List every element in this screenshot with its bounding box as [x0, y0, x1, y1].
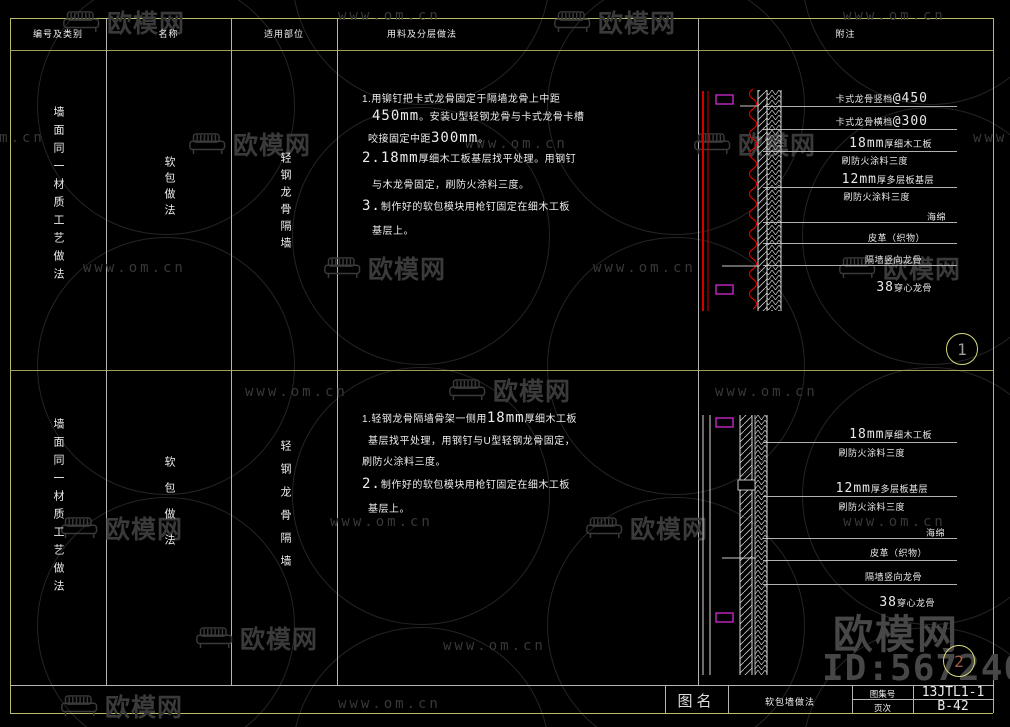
col-line-2 — [231, 18, 232, 685]
label-cassette-rail: 卡式龙骨横档@300 — [836, 114, 928, 129]
method-text: 厚细木工板 — [525, 414, 578, 425]
row-divider — [10, 370, 993, 371]
label-through-stud: 38穿心龙骨 — [879, 595, 935, 610]
label-multilayer-12: 12mm厚多层板基层 — [836, 481, 928, 496]
sofa-icon — [60, 516, 102, 540]
url-watermark: www.om.cn — [245, 384, 348, 400]
col-line-3 — [337, 18, 338, 685]
row2-location: 轻钢龙骨隔墙 — [277, 440, 293, 578]
page-number-value: B-42 — [913, 699, 993, 714]
row2-method-line: 刷防火涂料三度。 — [362, 453, 446, 468]
oumo-logo-watermark: 欧模网 — [323, 250, 446, 286]
label-dim: 38 — [876, 280, 894, 295]
detail-number-1: 1 — [946, 333, 978, 365]
url-watermark: www.om.cn — [593, 260, 696, 276]
row1-method-line: 3.制作好的软包模块用枪钉固定在细木工板 — [362, 198, 570, 214]
label-dim: 18mm — [849, 427, 884, 442]
watermark-logo-text: 欧模网 — [493, 372, 571, 408]
row2-category: 墙面同一材质工艺做法 — [50, 418, 66, 598]
oumo-logo-watermark: 欧模网 — [553, 4, 676, 40]
row1-name: 软包做法 — [161, 156, 177, 220]
sofa-icon — [553, 10, 595, 34]
label-text: 厚细木工板 — [884, 430, 932, 440]
sofa-icon — [195, 626, 237, 650]
row2-name: 软包做法 — [161, 456, 177, 560]
drawing-name-value: 软包墙做法 — [728, 695, 852, 708]
row1-location: 轻钢龙骨隔墙 — [277, 152, 293, 254]
oumo-logo-watermark: 欧模网 — [448, 372, 571, 408]
row2-method-line: 基层上。 — [368, 500, 410, 515]
label-sponge: 海绵 — [926, 526, 945, 539]
header-underline — [10, 50, 993, 51]
label-text: 卡式龙骨竖档 — [836, 94, 893, 104]
row1-method-line: 与木龙骨固定，刷防火涂料三度。 — [372, 176, 530, 191]
label-partition-stud: 隔墙竖向龙骨 — [865, 570, 922, 583]
url-watermark: www.om.cn — [338, 8, 441, 24]
url-watermark: www.om.cn — [715, 384, 818, 400]
sofa-icon — [323, 256, 365, 280]
dim-value: 18mm — [487, 410, 525, 426]
watermark-logo-text: 欧模网 — [105, 688, 183, 724]
col-line-1 — [106, 18, 107, 685]
label-dim: @300 — [893, 114, 928, 129]
label-text: 厚细木工板 — [884, 139, 932, 149]
label-through-stud: 38穿心龙骨 — [876, 280, 932, 295]
header-name: 名称 — [106, 27, 231, 40]
row1-method-line: 咬接固定中距300mm。 — [368, 130, 489, 146]
sofa-icon — [60, 694, 102, 718]
watermark-logo-text: 欧模网 — [240, 620, 318, 656]
oumo-logo-watermark: 欧模网 — [60, 688, 183, 724]
label-dim: 38 — [879, 595, 897, 610]
method-text: 咬接固定中距 — [368, 134, 431, 145]
label-dim: 18mm — [849, 136, 884, 151]
url-watermark: www.om.cn — [330, 514, 433, 530]
row1-method-line: 2.18mm厚细木工板基层找平处理。用钢钉 — [362, 150, 576, 166]
url-watermark: www.om.cn — [0, 130, 45, 146]
row1-method-line: 基层上。 — [372, 222, 414, 237]
label-plywood-18: 18mm厚细木工板 — [849, 136, 932, 151]
label-dim: @450 — [893, 91, 928, 106]
label-fireproof-coat: 刷防火涂料三度 — [843, 190, 910, 203]
label-fireproof-coat: 刷防火涂料三度 — [841, 154, 908, 167]
label-partition-stud: 隔墙竖向龙骨 — [865, 253, 922, 266]
oumo-logo-watermark: 欧模网 — [195, 620, 318, 656]
page-number-label: 页次 — [852, 702, 913, 714]
label-fireproof-coat: 刷防火涂料三度 — [838, 446, 905, 459]
label-dim: 12mm — [836, 481, 871, 496]
label-cassette-stud: 卡式龙骨竖档@450 — [836, 91, 928, 106]
table-border-right — [993, 18, 994, 713]
atlas-number-label: 图集号 — [852, 688, 913, 700]
row1-method-line: 450mm。安装U型轻钢龙骨与卡式龙骨卡槽 — [372, 108, 584, 124]
sofa-icon — [585, 516, 627, 540]
label-multilayer-12: 12mm厚多层板基层 — [842, 172, 934, 187]
method-text: 制作好的软包模块用枪钉固定在细木工板 — [381, 202, 570, 213]
label-text: 穿心龙骨 — [897, 598, 935, 608]
dim-value: 450mm — [372, 108, 419, 124]
url-watermark: www.om.cn — [843, 8, 946, 24]
label-text: 穿心龙骨 — [894, 283, 932, 293]
list-number: 3. — [362, 198, 381, 214]
cad-drawing-sheet: 欧模网 欧模网 欧模网 欧模网 欧模网 欧模网 欧模网 欧模网 欧模网 欧模网 … — [0, 0, 1010, 727]
method-text: 1.轻钢龙骨隔墙骨架一侧用 — [362, 414, 487, 425]
list-number: 2. — [362, 476, 381, 492]
row1-category: 墙面同一材质工艺做法 — [50, 106, 66, 286]
label-text: 厚多层板基层 — [871, 484, 928, 494]
detail-drawing-1 — [695, 85, 795, 320]
row2-method-line: 2.制作好的软包模块用枪钉固定在细木工板 — [362, 476, 570, 492]
url-watermark: www.om.cn — [443, 638, 546, 654]
sofa-icon — [448, 378, 490, 402]
label-fireproof-coat: 刷防火涂料三度 — [838, 500, 905, 513]
label-dim: 12mm — [842, 172, 877, 187]
method-text: 制作好的软包模块用枪钉固定在细木工板 — [381, 480, 570, 491]
header-category: 编号及类别 — [10, 27, 106, 40]
url-watermark: www.om.cn — [973, 130, 1010, 146]
watermark-logo-text: 欧模网 — [368, 250, 446, 286]
header-notes: 附注 — [698, 27, 993, 40]
label-text: 厚多层板基层 — [877, 175, 934, 185]
detail-drawing-2 — [695, 410, 795, 680]
method-text: 。安装U型轻钢龙骨与卡式龙骨卡槽 — [419, 112, 584, 123]
header-method: 用料及分层做法 — [337, 27, 507, 40]
label-leather: 皮革（织物） — [868, 231, 925, 244]
watermark-id: ID:567246 — [822, 648, 1010, 689]
header-location: 适用部位 — [231, 27, 337, 40]
url-watermark: www.om.cn — [83, 260, 186, 276]
method-text: 。 — [478, 134, 489, 145]
table-border-left — [10, 18, 11, 713]
watermark-logo-text: 欧模网 — [598, 4, 676, 40]
watermark-logo-text: 欧模网 — [233, 126, 311, 162]
dim-value: 2.18mm — [362, 150, 419, 166]
row2-method-line: 1.轻钢龙骨隔墙骨架一侧用18mm厚细木工板 — [362, 410, 577, 426]
label-plywood-18: 18mm厚细木工板 — [849, 427, 932, 442]
row1-method-line: 1.用铆钉把卡式龙骨固定于隔墙龙骨上中距 — [362, 90, 560, 105]
dim-value: 300mm — [431, 130, 478, 146]
atlas-number-value: 13JTL1-1 — [913, 685, 993, 700]
oumo-logo-watermark: 欧模网 — [585, 510, 708, 546]
label-leather: 皮革（织物） — [870, 546, 927, 559]
sofa-icon — [188, 132, 230, 156]
url-watermark: www.om.cn — [338, 696, 441, 712]
label-text: 卡式龙骨横档 — [836, 117, 893, 127]
drawing-name-label: 图名 — [665, 690, 728, 711]
row2-method-line: 基层找平处理，用钢钉与U型轻钢龙骨固定， — [368, 432, 575, 447]
label-sponge: 海绵 — [927, 210, 946, 223]
detail-number-2: 2 — [943, 645, 975, 677]
method-text: 厚细木工板基层找平处理。用钢钉 — [419, 154, 577, 165]
